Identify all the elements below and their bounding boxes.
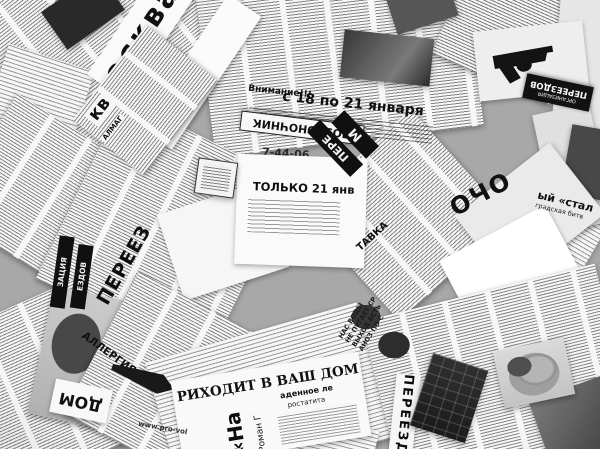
headline-dom: ДОМ: [58, 388, 104, 414]
dark-photo-scrap: [340, 29, 435, 86]
headline-pereezdov-vertical: ПЕРЕЕЗДОВ: [392, 373, 416, 449]
headline-zaciya: ЗАЦИЯ: [56, 256, 69, 287]
headline-na: «На: [218, 398, 250, 449]
schedule-lines: [247, 198, 340, 235]
headline-ezdov: ЕЗДОВ: [75, 262, 88, 292]
headline-m: М: [345, 125, 365, 145]
headline-roman: Роман Г: [251, 400, 269, 449]
small-bordered-ad: [194, 157, 239, 198]
ezdov-bar: ЕЗДОВ: [70, 244, 94, 309]
tiny-lines: [200, 164, 231, 192]
newspaper-collage-photo: осква кв АЛМАГ Внимание!!! с 18 по 21 ян…: [0, 0, 600, 449]
headline-tolko: ТОЛЬКО 21 янв: [253, 180, 355, 196]
